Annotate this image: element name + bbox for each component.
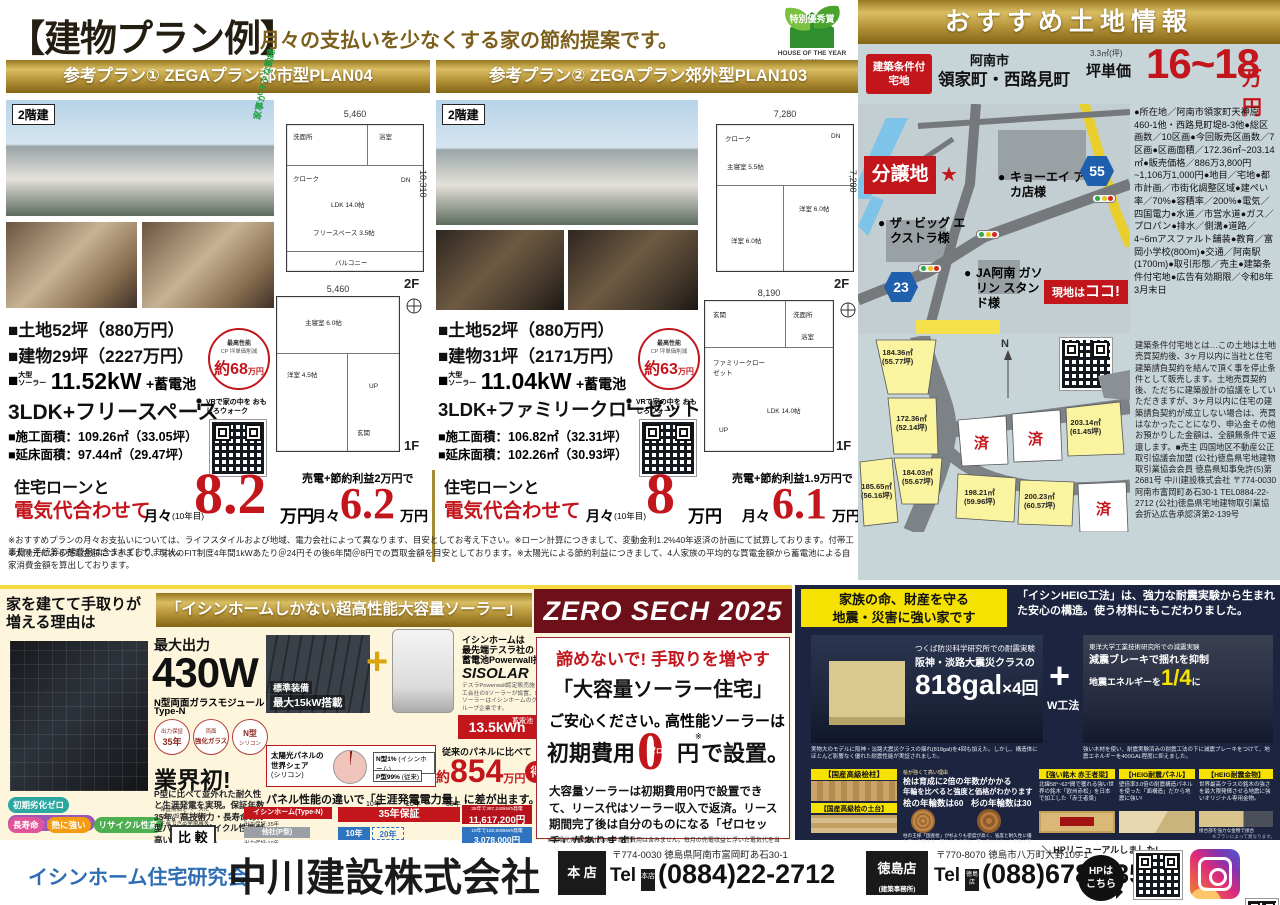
plan1-cp-badge: 最高性能 CP 坪単価削減 約68万円 [208, 328, 270, 390]
hp-btn-line1: HPは [1089, 866, 1113, 877]
cp-badge-unit: 万円 [678, 367, 694, 376]
solar-standard-1: 標準装備 [270, 681, 312, 694]
plan2-area1: ■施工面積：106.82㎡（32.31坪） [438, 426, 628, 445]
hp-qr-code[interactable] [1134, 851, 1182, 899]
pie-panel: 太陽光パネルの 世界シェア (シリコン) N型1% (イシンホーム) P型99%… [266, 745, 436, 787]
hinoki-reason-tiny: 桧が強くて高い理由 [903, 769, 948, 776]
zero-init-3: で設置。 [701, 736, 789, 768]
room-label: 主寝室 6.0帖 [305, 317, 342, 327]
footer-company: 中川建設株式会社 [228, 847, 540, 903]
traffic-light-icon [976, 230, 1000, 239]
lot-tsubo: (59.96坪) [964, 497, 995, 506]
page-title: 【建物プラン例】 [8, 8, 296, 62]
plan2-2f-label: 2F [834, 276, 849, 291]
plan2-pay-label2: 電気代合わせて [444, 494, 581, 523]
cmp-total-ishin-kwh: 35年で387,240kWh発電 [462, 805, 532, 812]
compass-icon [840, 302, 856, 318]
room-label: クローク [725, 133, 751, 143]
quarter-value: 1/4 [1161, 665, 1192, 690]
hinoki-rings-60: 桧の年輪数は60 [903, 797, 963, 809]
plan1-floor-plan-1f: 主寝室 6.0帖 洋室 4.5帖 UP 玄関 [276, 296, 400, 452]
cmp-total-other-kwh: 10年で102,600kWh発電 [462, 827, 532, 834]
cmp-note-1: 保証期間をベースに [160, 807, 209, 813]
plan2-2f-height-dim: 7,280 [848, 170, 858, 193]
land-details-text: ●所在地／阿南市領家町天神原460-1他・西路見町堤8-3他●総区画数／10区画… [1134, 106, 1276, 296]
quake-gal: 818gal×4回 [915, 669, 1039, 701]
metal-joint-photo [1199, 811, 1273, 827]
plan1-2f-height-dim: 10,310 [418, 170, 428, 198]
pie-p-label: P型99% (従来) [373, 770, 422, 782]
cp-badge-top: 最高性能 [210, 338, 268, 347]
card2-label: 【国産高級桧の土台】 [811, 803, 897, 813]
solar-label-line1: 大型 [448, 372, 462, 379]
plan2-pay-note: (10年目) [614, 510, 646, 522]
card4-note: 壁倍率3.0倍の耐震構造パネルを使った「面構造」だから地震に強い! [1119, 782, 1195, 803]
plan1-header: 参考プラン① ZEGAプラン都市型PLAN04 [6, 60, 430, 93]
lot-label: 185.65㎡(56.16坪) [861, 482, 892, 500]
quake-section: 家族の命、財産を守る地震・災害に強い家です 「イシンHEIG工法」は、強力な耐震… [795, 585, 1280, 840]
room-label: LDK 14.0帖 [767, 405, 801, 415]
plan1-section: 参考プラン① ZEGAプラン都市型PLAN04 2階建 5,460 洗面所 浴室… [6, 60, 430, 538]
zero-sub-2: 高性能ソーラーは [665, 710, 785, 731]
badge-line2: 宅地 [889, 75, 910, 87]
plan1-floor-plan-2f: 洗面所 浴室 クローク DN LDK 14.0帖 フリースペース 3.5帖 バル… [286, 124, 424, 272]
quake-test-photo-1: つくば防災科学研究所での耐震実験 阪神・淡路大震災クラスの 818gal×4回 [811, 635, 1043, 743]
quake-exp1-line1: つくば防災科学研究所での耐震実験 [915, 643, 1035, 654]
solar-circle-badge-1: 出力保証35年 [154, 719, 190, 755]
award-leaf-icon [780, 4, 844, 48]
comparison-chart: 保証期間をベースに10kW設置した時の生産できる発電量を 比 較 イシンホーム(… [160, 807, 532, 841]
footer-store2-box: 徳島店(建築事務所) [866, 851, 928, 895]
plan2-header: 参考プラン② ZEGAプラン郊外型PLAN103 [436, 60, 860, 93]
map-star-icon: ★ [940, 162, 958, 187]
quake-label: 家族の命、財産を守る地震・災害に強い家です [801, 589, 1007, 627]
plan1-2f-label: 2F [404, 276, 419, 291]
solar-label-line2: ソーラー [448, 380, 476, 387]
plan2-vr-note: VRで家の中を おもしろウォーク [636, 398, 702, 416]
traffic-light-icon [1092, 194, 1116, 203]
footer-tel2-tag: 徳島店 [965, 869, 979, 891]
badge-big: 35年 [155, 735, 189, 748]
wall-line [277, 353, 399, 354]
solar-module-type: Type-N [154, 706, 186, 717]
plan1-pay-label2: 電気代合わせて [14, 494, 151, 523]
footer: イシンホーム住宅研究会 中川建設株式会社 本 店 〒774-0030 徳島県阿南… [0, 843, 1280, 905]
map-here-label: 現地はココ! [1044, 280, 1128, 304]
plan2-spec-land: ■土地52坪（880万円） [438, 316, 615, 341]
lot-label: 200.23㎡(60.57坪) [1024, 492, 1055, 510]
plan1-pay-value: 8.2 [194, 460, 267, 527]
walking-person-icon [194, 398, 204, 414]
solar-standard-2: 最大15kW搭載 [270, 695, 345, 710]
sold-mark: 済 [1096, 498, 1111, 519]
here-label-2: ココ! [1085, 283, 1120, 300]
lot-area: 200.23㎡ [1024, 492, 1054, 501]
plan1-vr-note: VRで家の中を おもしろウォーク [206, 398, 272, 416]
plan2-pay-monthly: 月々 [586, 506, 614, 526]
room-label: DN [401, 177, 410, 184]
room-label: 洋室 4.5帖 [287, 369, 317, 379]
card5-label: 【HEIG耐震金物】 [1199, 769, 1273, 779]
lot-tsubo: (56.16坪) [861, 491, 892, 500]
room-label: 浴室 [379, 131, 392, 141]
cmp-total-ishin-yen: 11,617,200円 [462, 812, 532, 826]
panel-diagram [1119, 811, 1195, 833]
pie-n-value: N型1% [376, 756, 397, 763]
plan2-interior-photo-1 [436, 230, 564, 310]
save-value: 854 [450, 753, 503, 789]
plan2-pay-unit: 万円 [688, 502, 722, 527]
lot-tsubo: (60.57坪) [1024, 501, 1055, 510]
cp-badge-mid: CP 坪単価削減 [210, 347, 268, 355]
cmp-bar-other-20: 20年 [372, 827, 404, 840]
cmp-total-other: 10年で102,600kWh発電3,078,000円 [462, 827, 532, 844]
cp-badge-value: 約63 [644, 361, 678, 378]
cmp-note-2: 10kW設置した時の [160, 814, 207, 820]
zero-catch: 諦めないで! 手取りを増やす [537, 645, 789, 670]
lot-label: 198.21㎡(59.96坪) [964, 488, 995, 506]
card3-label: 【強い銘木 赤王者梁】 [1039, 769, 1115, 779]
cmp-bar-ishin: 35年保証 [338, 807, 460, 822]
battery-label: 蓄電池 [512, 716, 533, 726]
lot-label: 184.36㎡(55.77坪) [882, 348, 913, 366]
solar-tag: リサイクル性高 [94, 817, 163, 833]
powerwall-photo [392, 629, 454, 713]
quake-label-1: 家族の命、財産を守る [839, 592, 969, 607]
plan1-1f-width-dim: 5,460 [276, 284, 400, 294]
lot-label: 172.36㎡(52.14坪) [896, 414, 927, 432]
store2-name: 徳島店 [877, 861, 916, 876]
plan2-interior-photo-2 [568, 230, 698, 310]
map-bullet: ● [998, 170, 1005, 184]
wall-line [347, 353, 348, 451]
map-bullet: ● [964, 266, 971, 280]
plan2-1f-width-dim: 8,190 [704, 288, 834, 298]
badge-small: 出力保証 [155, 727, 189, 735]
land-unit-note: 3.3㎡(坪) [1090, 48, 1122, 59]
lot-tsubo: (61.45坪) [1070, 427, 1101, 436]
badge-small: 両面 [194, 727, 228, 735]
lot-tsubo: (55.77坪) [882, 357, 913, 366]
solar-circle-badge-3: N型シリコン [232, 719, 268, 755]
badge-big: N型 [233, 728, 267, 739]
award-badge-text: 特別優秀賞 [766, 14, 858, 24]
plan1-solar-kw: 11.52kW [51, 368, 142, 394]
plan2-pay-value2: 6.1 [772, 478, 827, 529]
room-label: バルコニー [335, 257, 367, 267]
room-label: LDK 14.0帖 [331, 199, 365, 209]
room-label: 主寝室 5.5帖 [727, 161, 764, 171]
sold-mark: 済 [974, 432, 989, 453]
plan2-section: 参考プラン② ZEGAプラン郊外型PLAN103 2階建 7,280 クローク … [436, 60, 860, 538]
badge-big: 強化ガラス [194, 735, 228, 745]
plan1-layout: 3LDK+フリースペース [8, 396, 219, 426]
zero-init-1: 初期費用 [547, 736, 635, 768]
land-condition-badge: 建築条件付宅地 [866, 54, 932, 94]
quake-note-1: 実物大のモデルに阪神・淡路大震災クラスの揺れ(818gal)を4回も加えた。しか… [811, 747, 1043, 761]
card5-note: 世界最高クラスの銘木の強さを最大限発揮させる地震に強いオリジナル専用金物。 [1199, 782, 1273, 803]
solar-reason-2: 増える理由は [6, 611, 96, 632]
traffic-light-icon [918, 264, 942, 273]
hp-button[interactable]: HPはこちら [1078, 855, 1124, 901]
plan2-1f-label: 1F [836, 438, 851, 453]
lot-diagram: N 184.36㎡(55.77坪) 172.36㎡(52.14坪) 184.03… [858, 336, 1130, 532]
wall-line [287, 251, 423, 252]
footer-org: イシンホーム住宅研究会 [28, 861, 247, 890]
walking-person-icon [624, 398, 634, 414]
solar-label-line1: 大型 [18, 372, 32, 379]
plan1-solar-suffix: +蓄電池 [146, 376, 196, 392]
footer-tel1-number[interactable]: (0884)22-2712 [658, 859, 835, 890]
cp-badge-value: 約68 [214, 361, 248, 378]
zero-sech-header: ZERO SECH 2025 [534, 589, 792, 633]
hinoki-compare: 年輪を比べると強度と価格がわかります [903, 787, 1032, 797]
plan2-solar-suffix: +蓄電池 [576, 376, 626, 392]
solar-label-line2: ソーラー [18, 380, 46, 387]
plan2-pay-monthly2: 月々 [742, 506, 770, 526]
solar-banner: 「イシンホームしかない超高性能大容量ソーラー」 [156, 593, 532, 627]
room-label: 浴室 [801, 331, 814, 341]
solar-max-value: 430W [152, 649, 258, 697]
plan-disclaimer-2: ※太陽光による売電金額につきまして、現状のFIT制度4年間1kWあたり＠24円そ… [8, 547, 854, 571]
lot-area: 184.36㎡ [882, 348, 912, 357]
here-label-1: 現地は [1052, 287, 1085, 299]
gal-times: ×4回 [1002, 679, 1038, 698]
quake-headline: 「イシンHEIG工法」は、強力な耐震実験から生まれた安心の構造。使う材料にもこだ… [1017, 589, 1275, 619]
plan1-spec-solar: ■大型ソーラー 11.52kW +蓄電池 [8, 368, 196, 394]
cmp-other-label: 他社(P型) [244, 827, 310, 838]
card4-label: 【HEIG耐震パネル】 [1119, 769, 1195, 779]
plan1-interior-photo-2 [142, 222, 274, 308]
sugi-rings-30: 杉の年輪数は30 [971, 797, 1031, 809]
plan1-story-tag: 2階建 [12, 104, 55, 125]
solar-section: 家を建てて手取りが 増える理由は 「イシンホームしかない超高性能大容量ソーラー」… [0, 585, 792, 840]
wall-line [287, 165, 423, 166]
quake-exp1-line2: 阪神・淡路大震災クラスの [915, 654, 1035, 669]
footer-store1-box: 本 店 [558, 851, 606, 895]
hinoki-headline: 桧は育成に2倍の年数がかかる [903, 776, 1011, 787]
hp-btn-line2: こちら [1086, 879, 1116, 890]
quake-note-2: 強い木材を使い、耐震実験済みの耐震工法の下に減震ブレーキをつけて、地震エネルギー… [1083, 747, 1273, 761]
plan1-1f-label: 1F [404, 438, 419, 453]
plan1-spec-land: ■土地52坪（880万円） [8, 316, 185, 341]
location-map: 分譲地 ★ ● キョーエイ アピカ店様 ● ザ・ビッグ エクストラ様 ● JA阿… [858, 104, 1130, 334]
lot-area: 198.21㎡ [964, 488, 994, 497]
zero-sech-panel: 諦めないで! 手取りを増やす 「大容量ソーラー住宅」 ご安心ください。 高性能ソ… [536, 637, 790, 839]
quake-quarter: 地震エネルギーを1/4に [1089, 665, 1201, 691]
solar-circle-badge-2: 両面強化ガラス [193, 719, 229, 755]
footer-tel2-label: Tel [934, 865, 960, 887]
room-label: 玄関 [357, 427, 370, 437]
cmp-ishin-label: イシンホーム(Type-N) [244, 807, 332, 819]
room-label: フリースペース 3.5帖 [313, 227, 375, 237]
solar-panel-photo [10, 641, 148, 791]
badge-small: シリコン [233, 739, 267, 747]
save-pre: 約 [436, 769, 450, 785]
quarter-pre: 地震エネルギーを [1089, 677, 1161, 687]
plan2-cp-badge: 最高性能 CP 坪単価削減 約63万円 [638, 328, 700, 390]
room-label: クローク [293, 173, 319, 183]
quake-test-photo-2: 東洋大学工業技術研究所での減震実験 減震ブレーキで揺れを抑制 地震エネルギーを1… [1083, 635, 1273, 743]
land-header: おすすめ土地情報 [858, 0, 1280, 44]
plan2-solar-kw: 11.04kW [481, 368, 572, 394]
plan1-area2: ■延床面積：97.44㎡（29.47坪） [8, 444, 191, 463]
plan-varies-note: ※プランによって異なります。 [1175, 834, 1275, 840]
lot-tsubo: (52.14坪) [896, 423, 927, 432]
plan2-2f-width-dim: 7,280 [716, 109, 854, 119]
battery-box: 蓄電池 13.5kWh [458, 715, 536, 739]
compass-icon [406, 298, 422, 314]
footer-tel1-label: Tel [610, 865, 636, 887]
sisolar-logo: SISOLAR [462, 665, 529, 682]
save-amount: 約854万円得 [436, 753, 547, 790]
instagram-icon[interactable] [1190, 849, 1240, 899]
quake-label-2: 地震・災害に強い家です [832, 610, 975, 625]
plan1-pay-monthly: 月々 [144, 506, 172, 526]
solar-tag: 熱に強い [47, 817, 91, 833]
room-label: 洋室 6.0帖 [731, 235, 761, 245]
solar-tag: 長寿命 [8, 817, 44, 833]
zero-title: 「大容量ソーラー住宅」 [537, 673, 789, 702]
plan1-spec-building: ■建物29坪（2227万円） [8, 342, 194, 367]
lot-label: 184.03㎡(55.67坪) [902, 468, 933, 486]
sold-mark: 済 [1028, 428, 1043, 449]
footer-tel1-tag: 本店 [641, 869, 655, 891]
plan2-floor-plan-2f: クローク 主寝室 5.5帖 DN 洋室 6.0帖 洋室 6.0帖 [716, 124, 854, 272]
lot-area: 185.65㎡ [861, 482, 891, 491]
quarter-post: に [1192, 677, 1201, 687]
plan2-floor-plan-1f: 玄関 洗面所 浴室 ファミリークローゼット LDK 14.0帖 UP [704, 300, 834, 452]
land-legal-text: 建築条件付宅地とは…この土地は土地売買契約後、3ヶ月以内に当社と住宅建築請負契約… [1135, 340, 1277, 521]
north-label: N [1001, 338, 1009, 350]
room-label: 洋室 6.0帖 [799, 203, 829, 213]
wall-line [783, 185, 784, 271]
plan1-pay-value2: 6.2 [340, 478, 395, 529]
cmp-total-ishin: 35年で387,240kWh発電11,617,200円 [462, 805, 532, 824]
card1-label: 【国産高級桧柱】 [811, 769, 897, 780]
lot-area: 184.03㎡ [902, 468, 932, 477]
map-place-3: JA阿南 ガソリン スタンド様 [976, 266, 1046, 311]
room-label: UP [719, 427, 728, 434]
room-label: UP [369, 383, 378, 390]
pie-p-value: P型99% [376, 774, 400, 781]
map-subdivision-label: 分譲地 [864, 156, 936, 194]
lot-label: 203.14㎡(61.45坪) [1070, 418, 1101, 436]
plan1-pay-unit2: 万円 [400, 506, 428, 526]
card3-note: 北緯58°~62°間で獲れる強い世界の銘木「欧州赤松」を日本で加工した「赤王者梁… [1039, 782, 1115, 803]
land-towns: 領家町・西路見町 [938, 66, 1070, 90]
w-method-label: W工法 [1047, 697, 1079, 713]
land-panel: おすすめ土地情報 建築条件付宅地 阿南市 領家町・西路見町 3.3㎡(坪) 坪単… [858, 0, 1280, 580]
wall-line [367, 125, 368, 165]
pie-title-3: (シリコン) [271, 770, 304, 780]
wall-line [705, 347, 833, 348]
hinoki-pillar-photo [811, 781, 897, 801]
page-subtitle: 月々の支払いを少なくする家の節約提案です。 [260, 24, 678, 53]
room-label: ファミリークローゼット [713, 357, 771, 377]
save-unit: 万円 [503, 773, 525, 785]
map-place-2: ザ・ビッグ エクストラ様 [890, 216, 976, 246]
tree-ring-photo-hinoki [911, 809, 935, 833]
plan2-spec-building: ■建物31坪（2171万円） [438, 342, 624, 367]
wall-line [785, 301, 786, 347]
solar-tag: 初期劣化ゼロ [8, 797, 69, 813]
cp-badge-mid: CP 坪単価削減 [640, 347, 698, 355]
lot-tsubo: (55.67坪) [902, 477, 933, 486]
room-label: 玄関 [713, 309, 726, 319]
zero-ruby: ゼロ [649, 746, 663, 756]
plan1-2f-width-dim: 5,460 [286, 109, 424, 119]
plan2-pay-value: 8 [646, 460, 675, 527]
plan2-spec-solar: ■大型ソーラー 11.04kW +蓄電池 [438, 368, 626, 394]
cp-badge-top: 最高性能 [640, 338, 698, 347]
test-house-model [829, 661, 905, 725]
plan1-area1: ■施工面積：109.26㎡（33.05坪） [8, 426, 198, 445]
award-title: HOUSE OF THE YEAR [766, 50, 858, 57]
plus-sign: + [1049, 655, 1070, 697]
share-pie-chart [333, 750, 367, 784]
tree-ring-photo-sugi [977, 809, 1001, 833]
badge-line1: 建築条件付 [873, 61, 926, 73]
room-label: 洗面所 [793, 309, 813, 319]
plan2-area2: ■延床面積：102.26㎡（30.93坪） [438, 444, 628, 463]
store2-note: (建築事務所) [879, 886, 916, 893]
pie-p-note: (従来) [402, 774, 419, 781]
flyer-page: 【建物プラン例】 月々の支払いを少なくする家の節約提案です。 特別優秀賞 HOU… [0, 0, 1280, 905]
plan1-pay-unit: 万円 [280, 502, 314, 527]
hinoki-base-photo [811, 815, 897, 833]
plan2-story-tag: 2階建 [442, 104, 485, 125]
quake-exp2-line2: 減震ブレーキで揺れを抑制 [1089, 651, 1209, 666]
plan2-pay-unit2: 万円 [832, 506, 860, 526]
gal-value: 818gal [915, 669, 1002, 700]
plan1-interior-photo-1 [6, 222, 137, 308]
map-bullet: ● [878, 216, 885, 230]
plus-sign: + [366, 641, 388, 684]
tesla-note: テスラPowerwall認定販売施工会社の9ソーラーが設置、9ソーラーはイシンホ… [462, 683, 538, 713]
red-beam-photo [1039, 811, 1115, 833]
room-label: 洗面所 [293, 131, 313, 141]
cp-badge-unit: 万円 [248, 367, 264, 376]
solar-tags-row-2: 長寿命熱に強いリサイクル性高 [8, 815, 168, 833]
plan1-pay-monthly2: 月々 [312, 506, 340, 526]
instagram-qr-code[interactable] [1246, 899, 1278, 905]
quake-exp2-line1: 東洋大学工業技術研究所での減震実験 [1089, 641, 1200, 651]
wall-line [717, 185, 853, 186]
land-unit-label: 坪単価 [1086, 60, 1131, 81]
room-label: DN [831, 133, 840, 140]
lot-area: 172.36㎡ [896, 414, 926, 423]
lot-area: 203.14㎡ [1070, 418, 1100, 427]
cmp-bar-other-10: 10年 [338, 827, 370, 840]
